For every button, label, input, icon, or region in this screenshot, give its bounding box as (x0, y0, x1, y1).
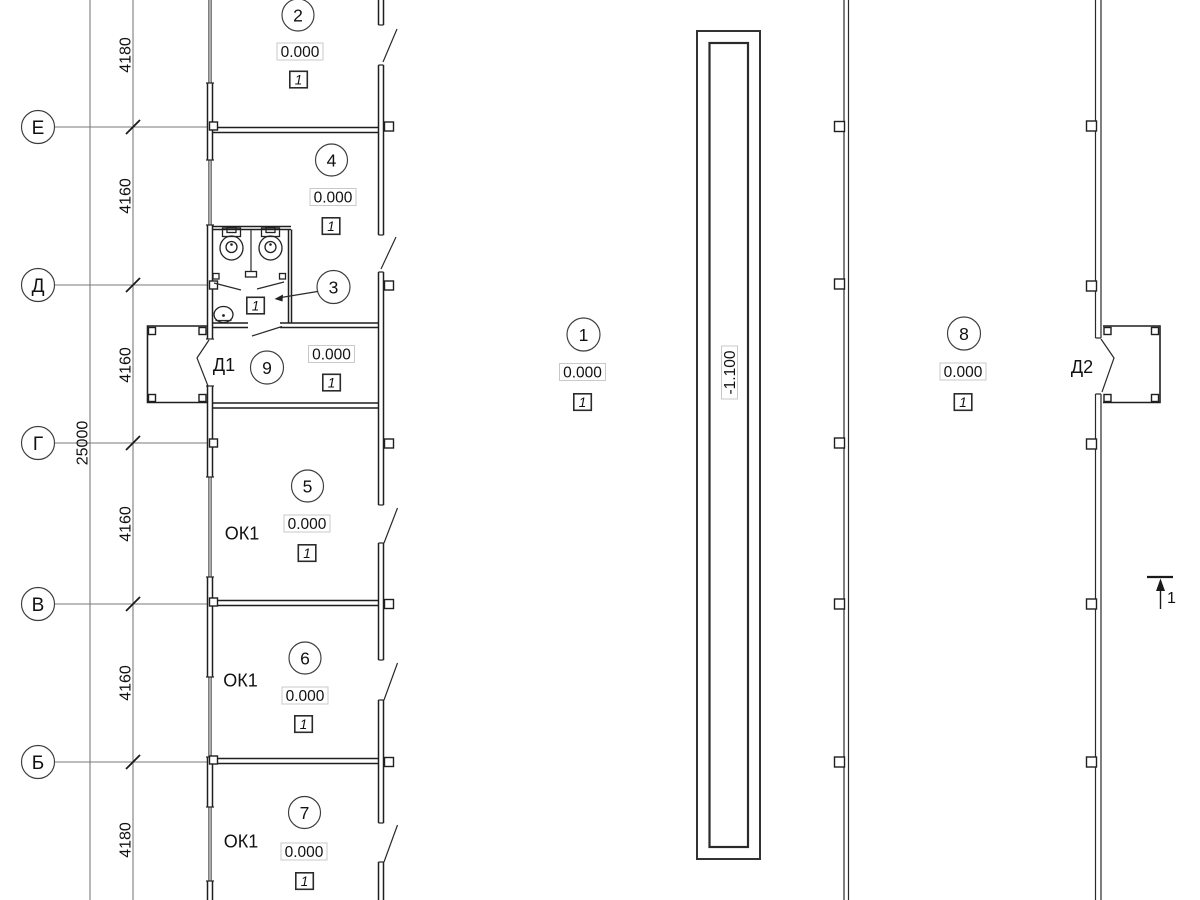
elevation-mark: 0.000 (944, 364, 983, 381)
room-number-bubble: 9 (262, 358, 272, 378)
finish-type-mark: 1 (303, 546, 311, 561)
elevation-mark: 0.000 (285, 844, 324, 861)
dim-interval-5: 4160 (118, 665, 135, 701)
finish-type-mark: 1 (295, 72, 303, 87)
finish-type-mark: 1 (579, 395, 587, 410)
dim-interval-6: 4180 (118, 822, 135, 858)
axis-bubble-g: Г (22, 427, 55, 460)
dimension-texts: 4180 4160 4160 4160 4160 4180 25000 (75, 37, 135, 858)
room-number-bubble: 8 (959, 324, 969, 344)
axis-label-v: В (32, 595, 45, 616)
room-7-annotation: 7 ОК1 0.000 1 (224, 797, 327, 890)
entrance-d1 (148, 326, 210, 403)
window-tag-ok1: ОК1 (224, 831, 259, 851)
toilet-room (213, 228, 286, 337)
toilet-icon (259, 228, 282, 261)
elevation-mark: 0.000 (314, 190, 353, 207)
room-1-annotation: 1 0.000 1 (560, 318, 606, 410)
stall-door-swing-icon (257, 282, 284, 289)
section-label: 1 (1167, 590, 1176, 607)
finish-type-mark: 1 (328, 375, 336, 390)
dim-interval-1: 4180 (118, 37, 135, 73)
elevation-mark: 0.000 (286, 688, 325, 705)
finish-type-mark: 1 (959, 395, 967, 410)
dim-interval-3: 4160 (118, 347, 135, 383)
finish-type-mark: 1 (301, 874, 309, 889)
room-5-annotation: 5 ОК1 0.000 1 (225, 470, 330, 561)
axis-label-e: Е (32, 118, 45, 139)
dim-interval-2: 4160 (118, 178, 135, 214)
room-6-annotation: 6 ОК1 0.000 1 (223, 642, 328, 732)
axis-bubble-e: Е (22, 111, 55, 144)
trench-elevation-mark: -1.100 (722, 350, 739, 394)
elevation-mark: 0.000 (563, 365, 602, 382)
axis-bubbles: Е Д Г В Б (22, 111, 55, 779)
room-3-annotation: 3 1 (247, 271, 350, 314)
leader-line (281, 292, 318, 298)
door-tag-d1: Д1 (213, 355, 235, 375)
finish-type-mark: 1 (252, 298, 260, 313)
double-door-swing-icon (1101, 339, 1114, 392)
axis-label-b: Б (32, 753, 44, 774)
toilet-icon (220, 228, 243, 261)
elevation-mark: 0.000 (288, 516, 327, 533)
axis-bubble-b: Б (22, 746, 55, 779)
axis-label-d: Д (32, 276, 45, 297)
window-tag-ok1: ОК1 (223, 670, 258, 690)
dim-total: 25000 (75, 421, 92, 466)
window-tag-ok1: ОК1 (225, 523, 260, 543)
double-door-swing-icon (197, 340, 209, 386)
porch-outline (148, 326, 208, 403)
right-wall (1087, 0, 1161, 900)
room-number-bubble: 4 (327, 150, 337, 170)
door-tag-d2: Д2 (1071, 357, 1093, 377)
room-number-bubble: 6 (300, 648, 310, 668)
room-annotations: 2 0.000 1 4 0.000 1 3 1 9 Д1 0 (213, 0, 1093, 889)
trench: -1.100 (697, 31, 760, 859)
room-number-bubble: 1 (579, 325, 589, 345)
sink-icon (214, 307, 233, 323)
room-9-annotation: 9 Д1 0.000 1 (213, 346, 355, 391)
section-mark: 1 (1147, 577, 1176, 609)
room-number-bubble: 5 (303, 476, 313, 496)
leader-arrow-icon (275, 295, 284, 302)
room-2-annotation: 2 0.000 1 (277, 0, 323, 88)
middle-wall (835, 0, 849, 900)
finish-type-mark: 1 (300, 717, 308, 732)
axis-label-g: Г (33, 434, 43, 455)
room-number-bubble: 2 (293, 5, 303, 25)
axis-bubble-d: Д (22, 269, 55, 302)
room-4-annotation: 4 0.000 1 (310, 144, 356, 234)
room-number-bubble: 3 (329, 277, 339, 297)
elevation-mark: 0.000 (312, 347, 351, 364)
axis-bubble-v: В (22, 588, 55, 621)
dim-interval-4: 4160 (118, 506, 135, 542)
section-arrow-icon (1156, 579, 1165, 592)
room-8-annotation: 8 Д2 0.000 1 (940, 317, 1093, 410)
elevation-mark: 0.000 (281, 44, 320, 61)
door-swing-icon (252, 327, 282, 337)
left-building-walls (206, 0, 398, 900)
finish-type-mark: 1 (327, 219, 335, 234)
floor-plan-drawing: Е Д Г В Б 4180 4160 4160 4160 4160 4180 … (0, 0, 1200, 900)
room-number-bubble: 7 (300, 803, 310, 823)
